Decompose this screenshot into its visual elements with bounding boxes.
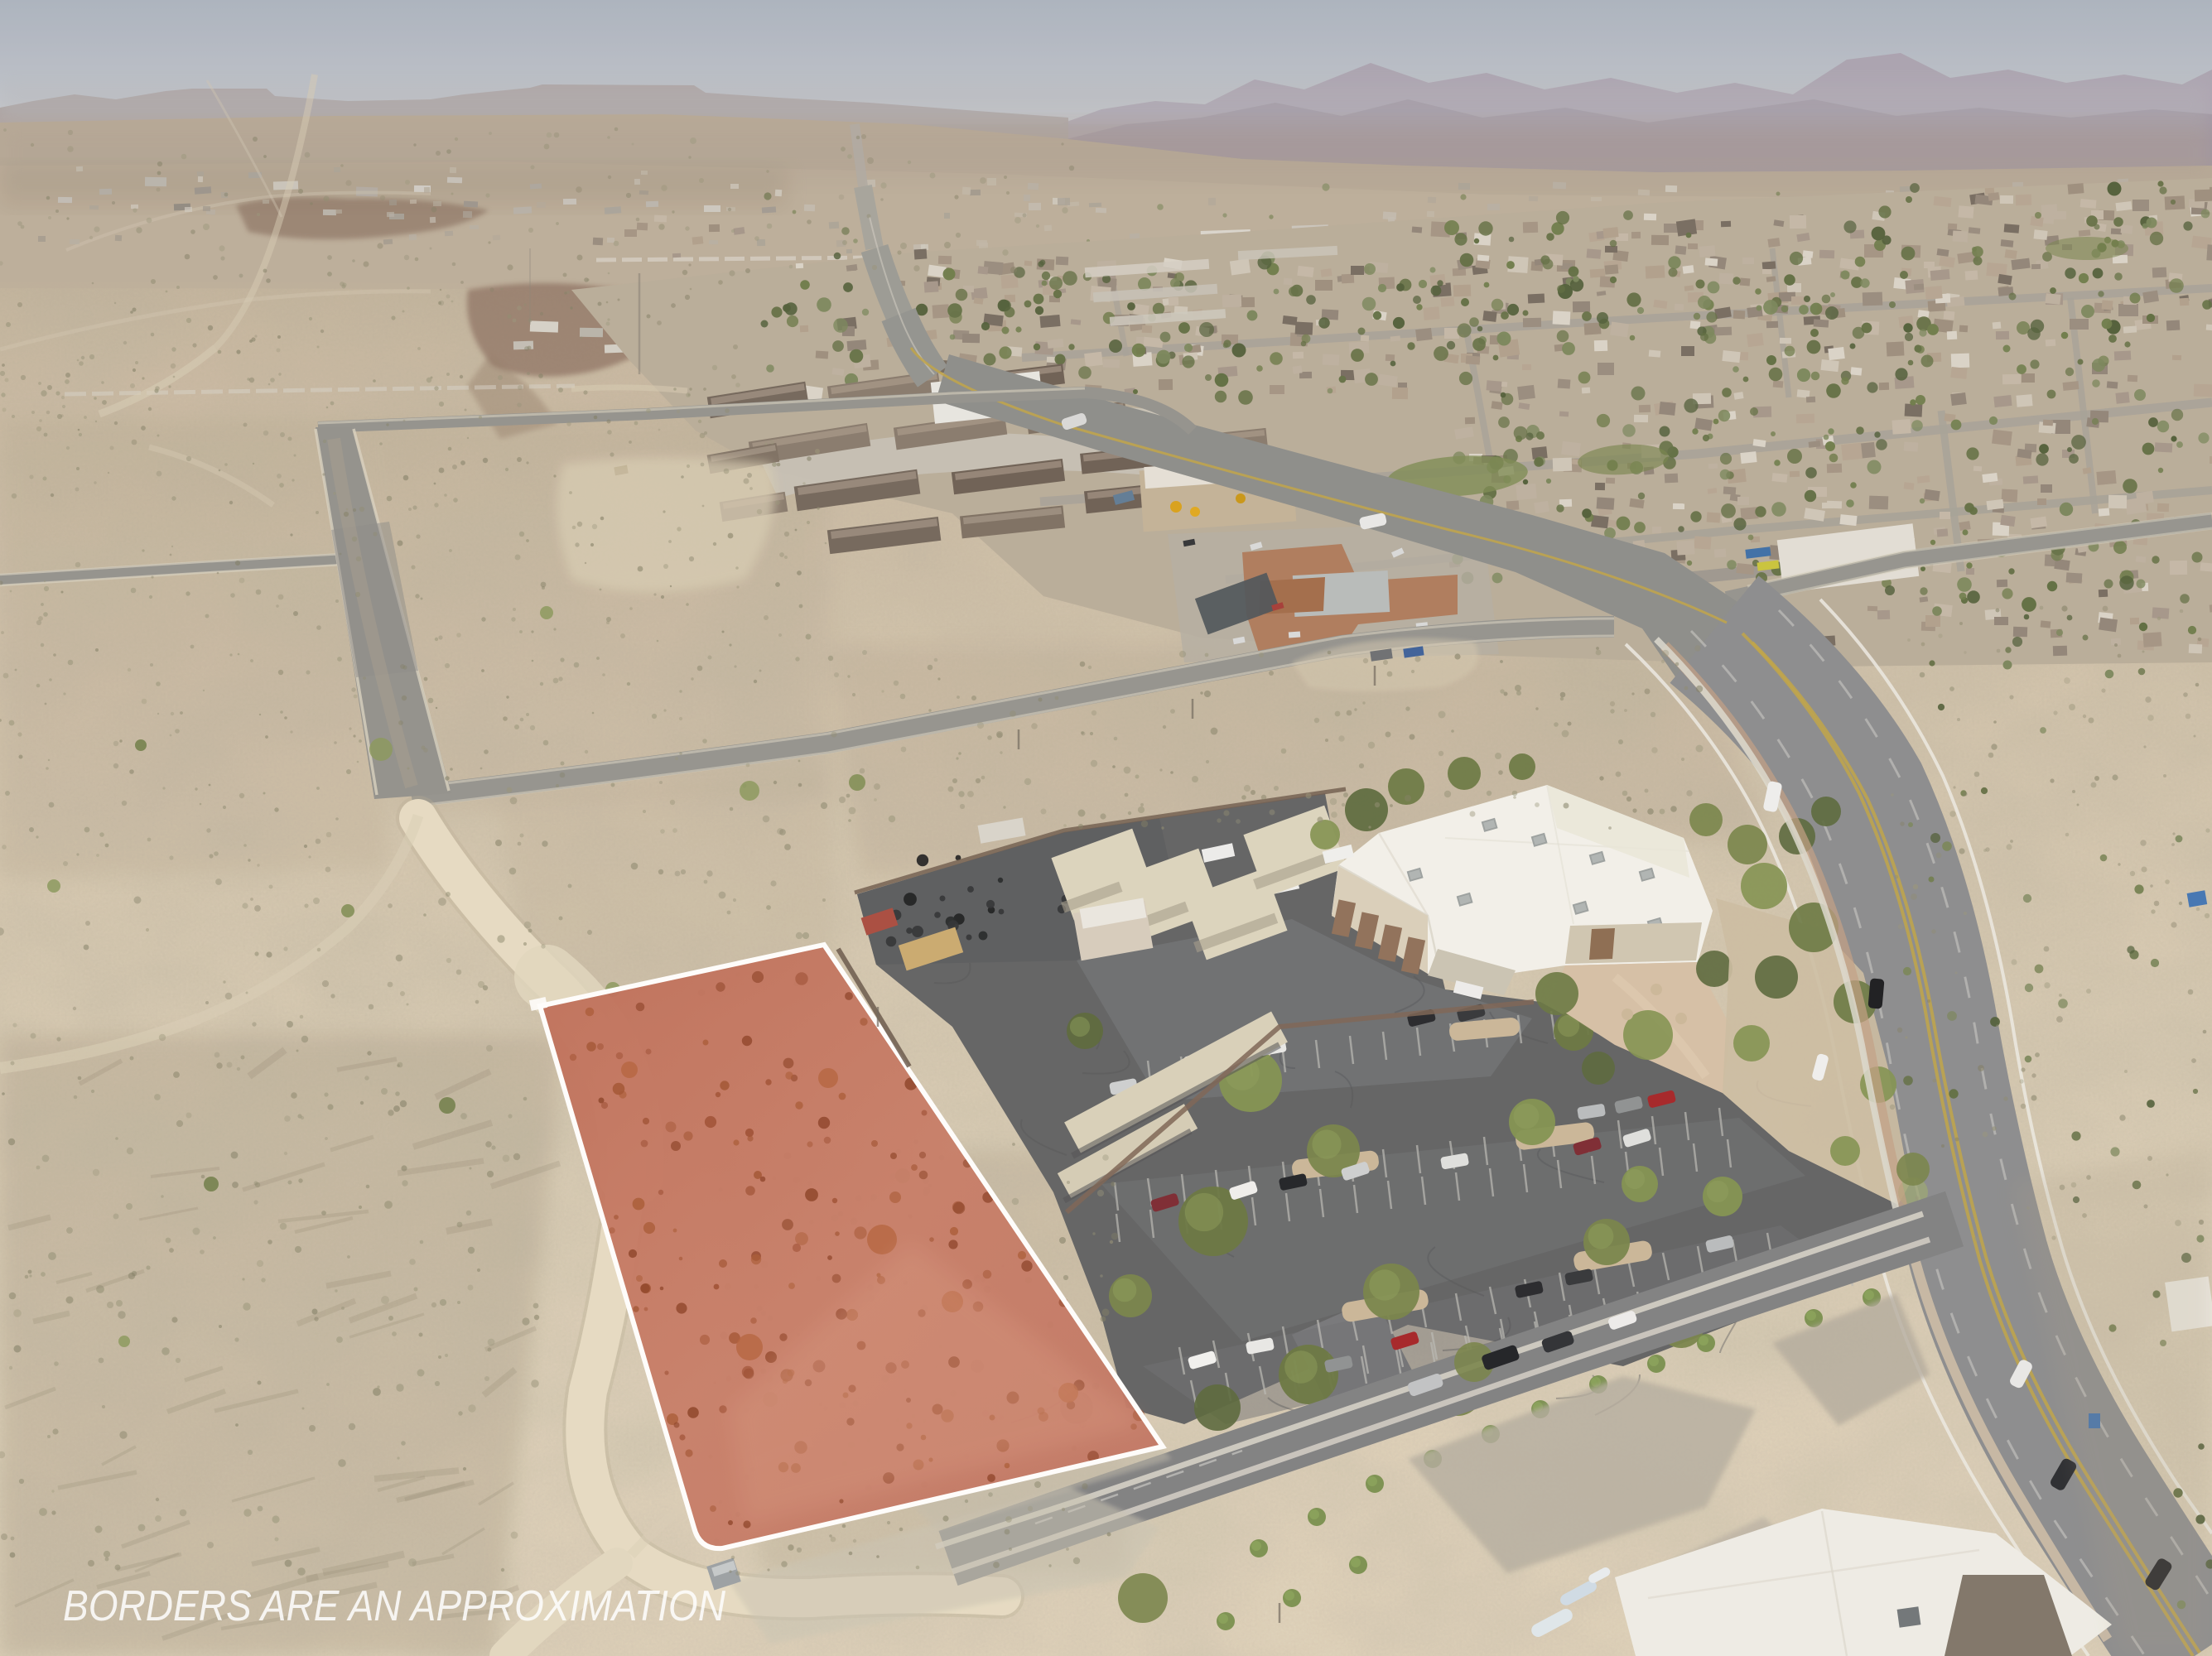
svg-text:BORDERS ARE AN APPROXIMATION: BORDERS ARE AN APPROXIMATION	[63, 1582, 725, 1630]
